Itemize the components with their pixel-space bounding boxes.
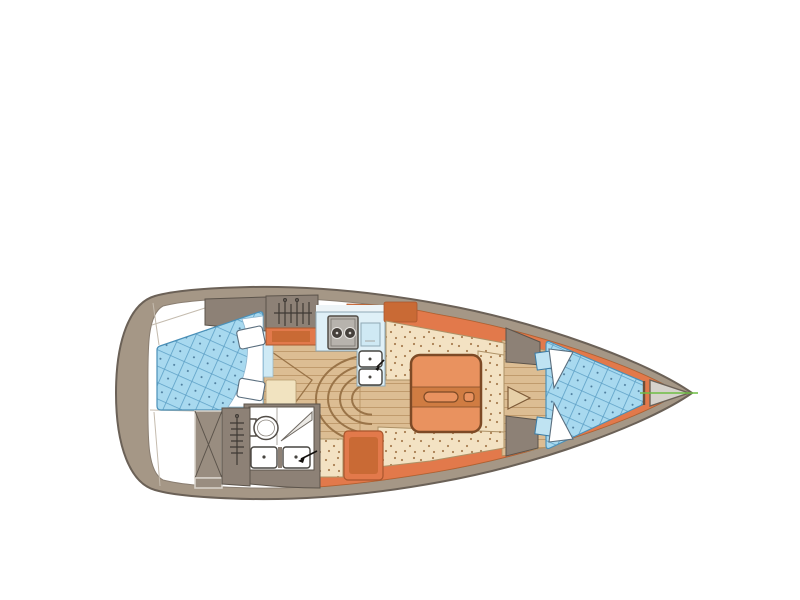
drain	[369, 376, 372, 379]
floor-plan-canvas	[0, 0, 800, 600]
table-handle	[424, 392, 458, 402]
drain	[262, 455, 265, 458]
saloon-table	[411, 355, 481, 432]
icebox	[361, 323, 380, 346]
galley-drawer-front	[272, 331, 310, 342]
aft-lockers-bottom	[195, 408, 250, 488]
head	[244, 404, 320, 488]
drain	[294, 455, 297, 458]
nav-seat-cushion	[349, 437, 378, 474]
starboard-cabinet	[384, 302, 417, 322]
pillow-icon	[236, 378, 265, 401]
vanity-divider	[278, 447, 282, 468]
drain	[369, 358, 372, 361]
table-knob	[464, 393, 474, 402]
burner-center	[336, 332, 339, 335]
boat-floor-plan	[0, 0, 800, 600]
settee-port-end	[318, 439, 343, 477]
burner-center	[349, 332, 352, 335]
lazarette-base	[195, 478, 222, 488]
